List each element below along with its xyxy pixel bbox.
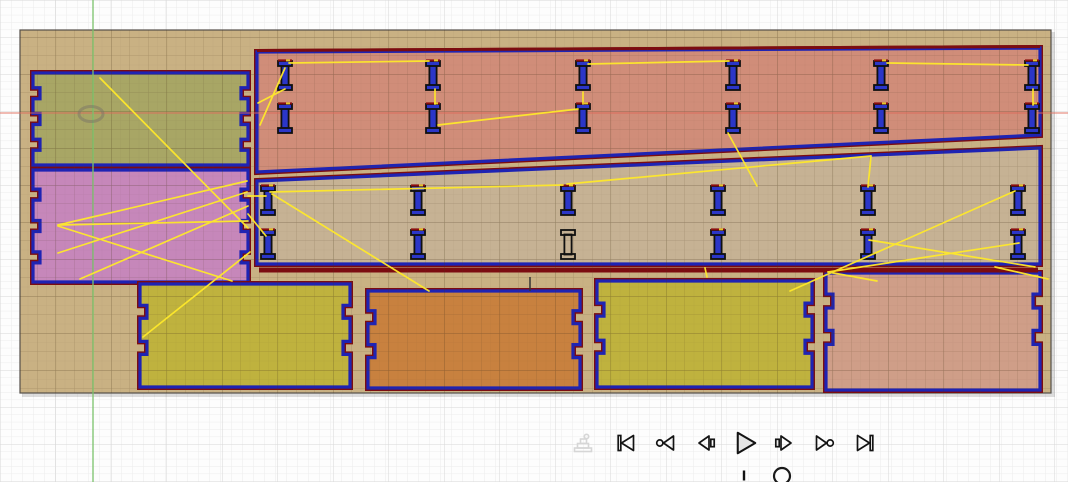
playback-step-forward[interactable] (771, 431, 795, 455)
playback-next-operation[interactable] (812, 431, 836, 455)
playback-go-to-end[interactable] (853, 431, 877, 455)
playback-go-to-start[interactable] (614, 431, 638, 455)
simulation-canvas (0, 0, 1068, 482)
cam-viewport (0, 0, 1068, 482)
timeline-operation-tick (743, 471, 745, 481)
timeline-slider-thumb[interactable] (774, 468, 790, 482)
playback-simulate-machine-toggle (571, 431, 595, 455)
playback-step-back[interactable] (695, 431, 719, 455)
stock-grid-overlay-2 (20, 30, 1051, 393)
playback-play[interactable] (731, 429, 760, 458)
playback-previous-operation[interactable] (654, 431, 678, 455)
